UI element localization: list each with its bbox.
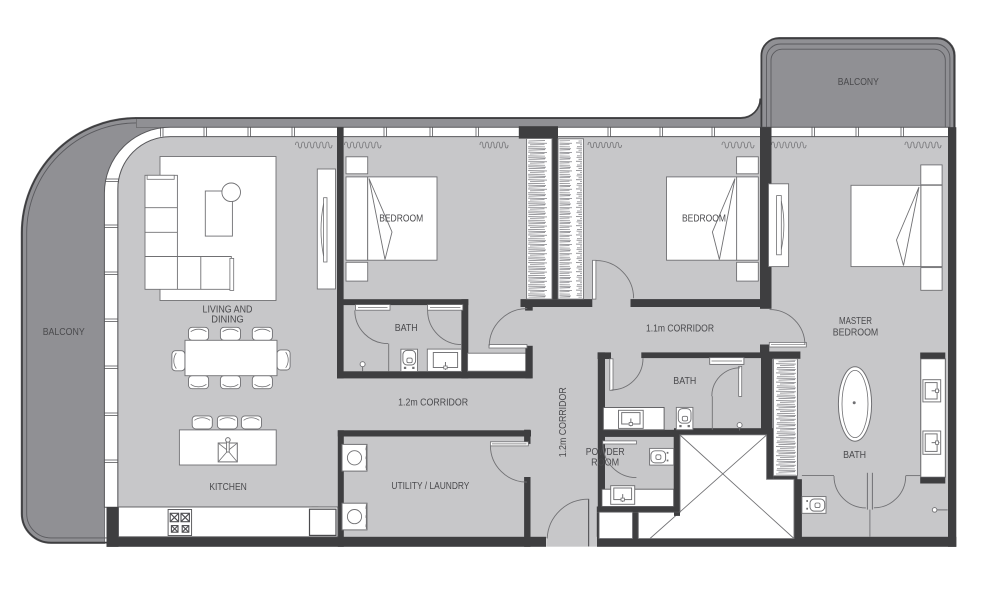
svg-text:BEDROOM: BEDROOM (379, 214, 423, 225)
svg-text:BATH: BATH (673, 376, 696, 387)
svg-text:UTILITY / LAUNDRY: UTILITY / LAUNDRY (391, 481, 469, 492)
svg-text:1.2m CORRIDOR: 1.2m CORRIDOR (398, 398, 468, 409)
svg-text:BALCONY: BALCONY (43, 327, 85, 338)
svg-text:1.2m CORRIDOR: 1.2m CORRIDOR (558, 387, 569, 457)
svg-text:BEDROOM: BEDROOM (833, 328, 879, 339)
svg-text:DINING: DINING (211, 315, 244, 326)
svg-text:BEDROOM: BEDROOM (682, 214, 726, 225)
svg-text:BATH: BATH (395, 323, 418, 334)
svg-text:MASTER: MASTER (839, 316, 872, 327)
svg-text:BALCONY: BALCONY (838, 77, 879, 88)
svg-text:1.1m CORRIDOR: 1.1m CORRIDOR (646, 323, 714, 334)
svg-text:BATH: BATH (843, 450, 866, 461)
svg-text:ROOM: ROOM (591, 458, 619, 469)
svg-text:KITCHEN: KITCHEN (209, 482, 247, 493)
